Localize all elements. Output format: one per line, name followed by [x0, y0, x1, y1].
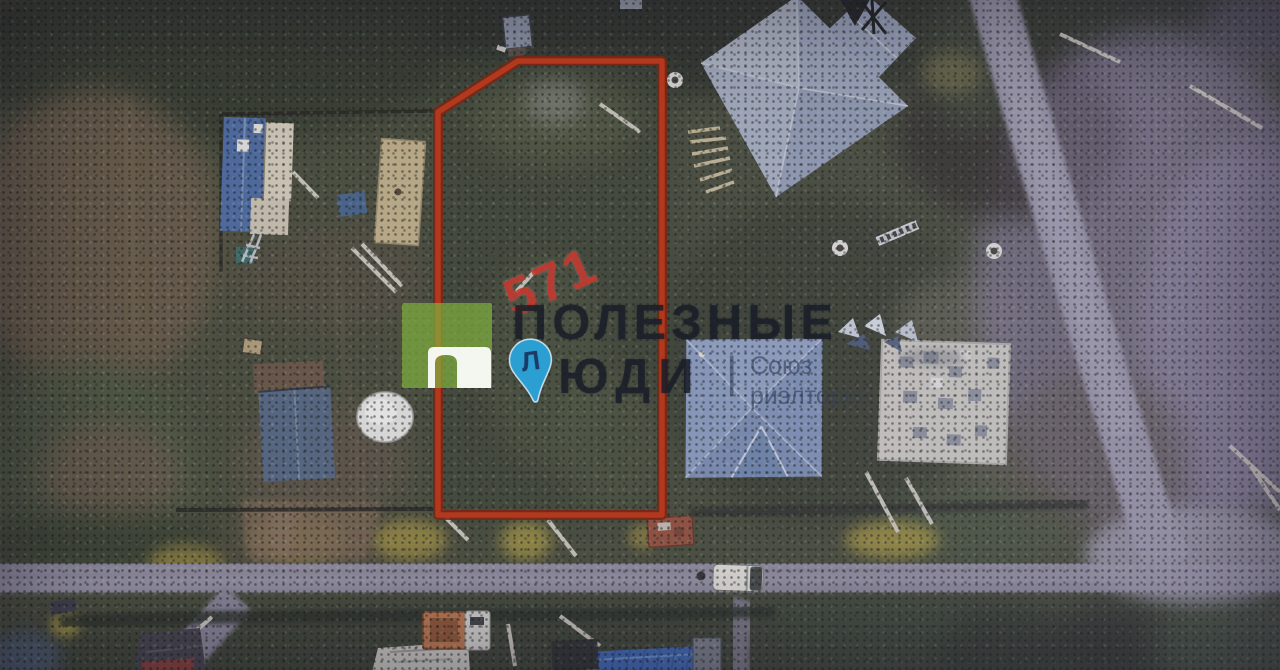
- aerial-photo: 571 ПОЛЕЗНЫЕ Л ЮДИ | Союз риэлторов: [0, 0, 1280, 670]
- plot-boundary-outline: [438, 61, 662, 515]
- plot-boundary-outline-core: [438, 61, 662, 515]
- plot-boundary-layer: [0, 0, 1280, 670]
